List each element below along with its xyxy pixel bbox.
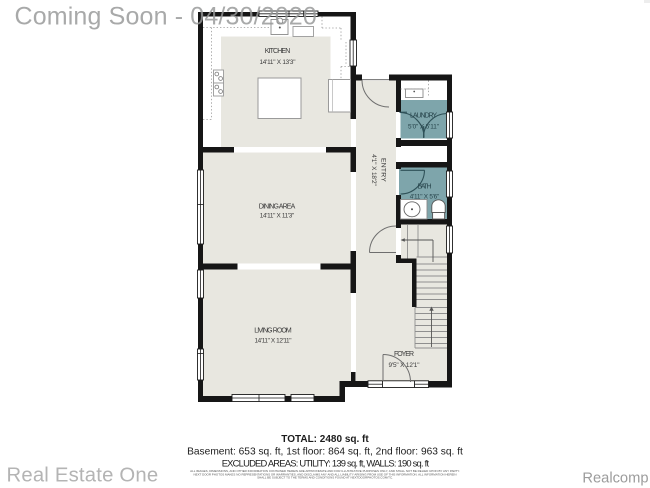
svg-text:BATH: BATH <box>418 184 432 191</box>
svg-text:Realcomp: Realcomp <box>582 470 648 486</box>
svg-text:Coming Soon - 04/30/2020: Coming Soon - 04/30/2020 <box>15 2 317 30</box>
svg-text:LAUNDRY: LAUNDRY <box>410 113 437 120</box>
svg-text:4'11" X 5'6": 4'11" X 5'6" <box>410 193 440 200</box>
svg-text:EXCLUDED AREAS: UTILITY: 139 s: EXCLUDED AREAS: UTILITY: 139 sq. ft, WAL… <box>222 458 430 469</box>
svg-text:9'5" X 12'1": 9'5" X 12'1" <box>389 362 420 369</box>
svg-text:14'11" X 11'3": 14'11" X 11'3" <box>260 213 295 220</box>
svg-text:SHALL BE SUBJECT TO THE TERMS: SHALL BE SUBJECT TO THE TERMS AND CONDIT… <box>257 475 393 479</box>
svg-text:Basement: 653 sq. ft, 1st floo: Basement: 653 sq. ft, 1st floor: 864 sq.… <box>187 446 463 457</box>
svg-text:4'1" X 18'2": 4'1" X 18'2" <box>370 154 377 186</box>
svg-text:LIVING ROOM: LIVING ROOM <box>254 328 292 335</box>
svg-text:14'11" X 13'3": 14'11" X 13'3" <box>260 59 296 66</box>
svg-text:DINING AREA: DINING AREA <box>259 204 296 211</box>
svg-text:ENTRY: ENTRY <box>380 158 387 182</box>
svg-text:TOTAL: 2480 sq. ft: TOTAL: 2480 sq. ft <box>281 434 369 445</box>
svg-text:14'11" X 12'11": 14'11" X 12'11" <box>255 338 292 345</box>
svg-text:5'0" X 5'11": 5'0" X 5'11" <box>408 124 439 131</box>
svg-text:Real Estate One: Real Estate One <box>7 464 159 486</box>
svg-text:FOYER: FOYER <box>394 351 414 358</box>
svg-text:KITCHEN: KITCHEN <box>265 48 291 55</box>
